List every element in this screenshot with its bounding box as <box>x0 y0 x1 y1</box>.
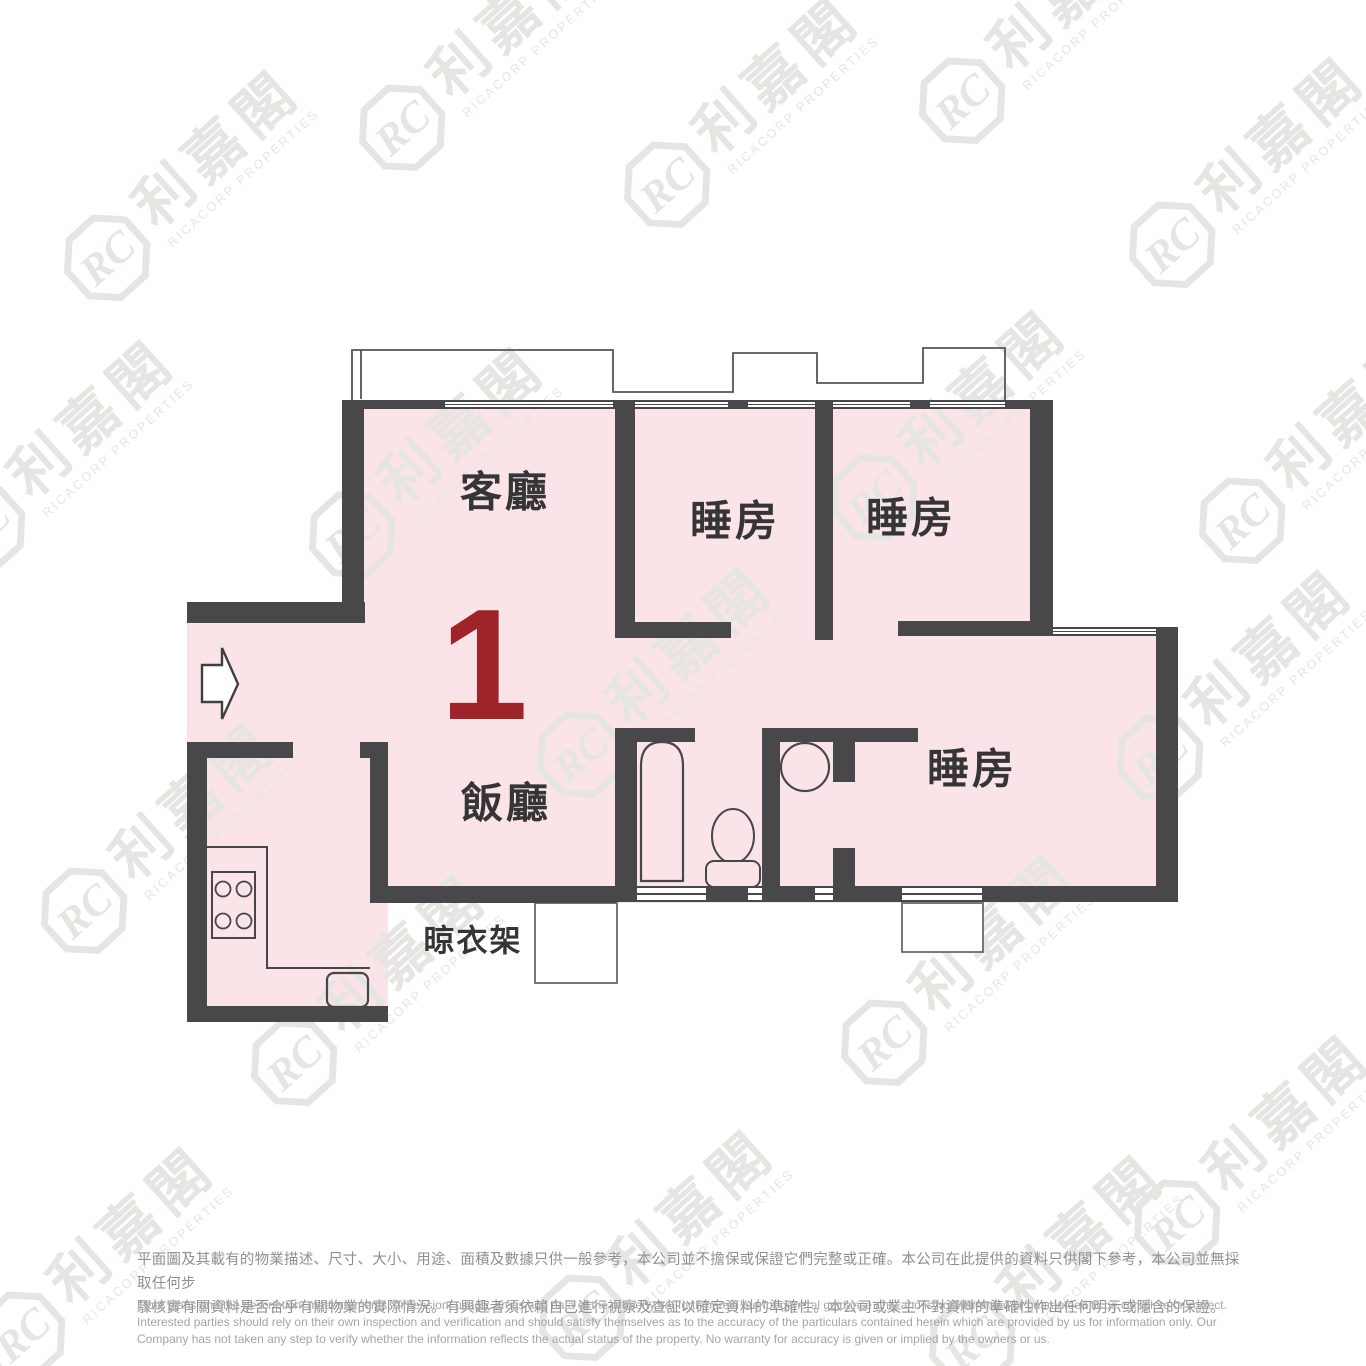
disclaimer-en-line3: Company has not taken any step to verify… <box>137 1331 1242 1348</box>
wall <box>815 400 833 409</box>
wall <box>910 400 930 409</box>
stove <box>212 872 255 938</box>
window-box-drying <box>535 903 617 983</box>
window <box>815 886 833 902</box>
disclaimer-en-line2: Interested parties should rely on their … <box>137 1314 1242 1331</box>
bay-window-outline <box>352 348 1005 400</box>
toilet-bowl <box>712 809 754 863</box>
disclaimer-en-line1: Floor plans and the description, measure… <box>137 1297 1242 1314</box>
wall <box>342 400 364 623</box>
room-label-drying-rack: 晾衣架 <box>424 916 523 961</box>
window <box>635 400 728 409</box>
toilet-base <box>706 861 760 887</box>
wall <box>187 1006 388 1022</box>
wall <box>1005 400 1053 409</box>
wall <box>615 622 731 638</box>
wall <box>833 848 855 902</box>
wall <box>613 400 635 409</box>
window <box>445 400 613 409</box>
kitchen-sink <box>327 973 368 1007</box>
wall <box>370 886 616 903</box>
wall <box>728 400 748 409</box>
floor-plan-canvas: RC 利嘉閣RICACORP PROPERTIES RC 利嘉閣RICACORP… <box>0 0 1366 1366</box>
window <box>930 400 1005 409</box>
room-label-bedroom-3: 睡房 <box>927 736 1017 797</box>
wall <box>370 742 388 892</box>
wall <box>1156 627 1178 897</box>
window <box>748 400 815 409</box>
room-label-bedroom-2: 睡房 <box>866 485 956 546</box>
bathtub <box>641 742 683 881</box>
wash-basin <box>781 743 829 791</box>
wall <box>342 400 445 409</box>
room-label-bedroom-1: 睡房 <box>690 488 780 549</box>
wall <box>615 728 695 742</box>
wall <box>187 742 207 1022</box>
disclaimer-zh-line1: 平面圖及其載有的物業描述、尺寸、大小、用途、面積及數據只供一般參考，本公司並不擔… <box>137 1248 1242 1296</box>
room-label-living: 客廳 <box>460 459 550 520</box>
window <box>833 400 910 409</box>
wall <box>1030 409 1053 636</box>
window-box-bedroom3 <box>902 903 983 952</box>
wall <box>982 886 1178 902</box>
window <box>902 886 982 902</box>
entrance-arrow-icon <box>202 648 238 719</box>
wall <box>706 886 748 902</box>
disclaimer-english: Floor plans and the description, measure… <box>137 1297 1242 1348</box>
wall <box>833 728 855 782</box>
wall <box>762 728 780 902</box>
wall <box>615 728 637 902</box>
wall <box>615 409 635 638</box>
wall <box>187 602 365 623</box>
wall <box>815 409 833 640</box>
unit-number: 1 <box>440 586 528 744</box>
room-label-dining: 飯廳 <box>461 770 551 831</box>
window <box>1053 627 1156 636</box>
